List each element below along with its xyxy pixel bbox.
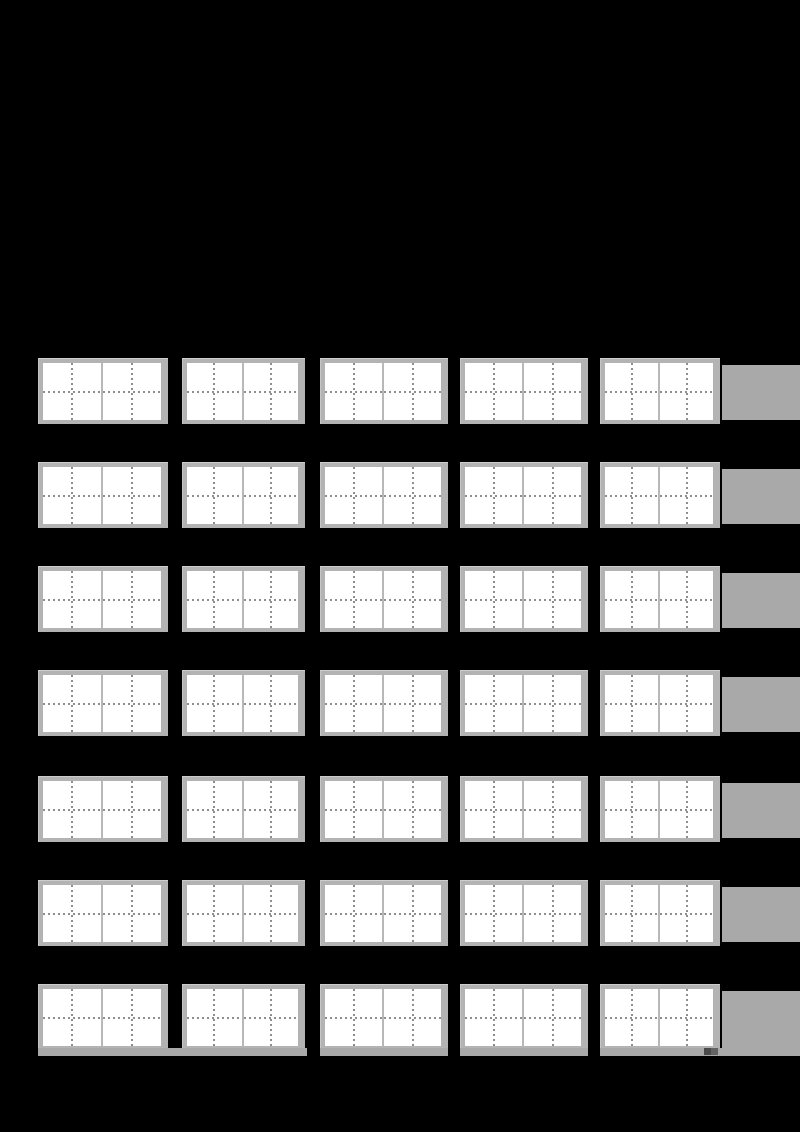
practice-box-r1-c3 [320, 358, 448, 424]
practice-cell [103, 675, 161, 732]
practice-cell [103, 363, 161, 420]
practice-cell [605, 885, 658, 942]
practice-cell [244, 571, 299, 628]
worksheet-page [0, 0, 800, 1132]
practice-box-r5-c3 [320, 776, 448, 842]
practice-cell [244, 675, 299, 732]
cell-pair [465, 989, 581, 1046]
practice-cell [660, 363, 713, 420]
practice-box-r6-c2 [182, 880, 305, 946]
bottom-band-segment [460, 1048, 588, 1056]
practice-cell [384, 989, 441, 1046]
practice-box-r5-c2 [182, 776, 305, 842]
practice-cell [244, 363, 299, 420]
practice-cell [465, 571, 522, 628]
practice-cell [325, 467, 382, 524]
practice-cell [660, 989, 713, 1046]
practice-cell [524, 467, 581, 524]
practice-cell [103, 885, 161, 942]
practice-cell [465, 675, 522, 732]
cell-pair [605, 885, 713, 942]
cell-pair [325, 781, 441, 838]
practice-box-r2-c5 [600, 462, 720, 528]
right-gray-strip [722, 991, 800, 1053]
cell-pair [465, 885, 581, 942]
practice-cell [187, 571, 242, 628]
practice-box-r7-c4 [460, 984, 588, 1050]
practice-cell [465, 363, 522, 420]
cell-pair [43, 885, 161, 942]
practice-cell [187, 675, 242, 732]
practice-box-r4-c5 [600, 670, 720, 736]
right-gray-strip [722, 783, 800, 838]
practice-cell [187, 467, 242, 524]
practice-cell [103, 781, 161, 838]
cell-pair [187, 467, 298, 524]
practice-box-r7-c1 [38, 984, 168, 1050]
cell-pair [187, 571, 298, 628]
practice-box-r2-c1 [38, 462, 168, 528]
practice-cell [384, 885, 441, 942]
practice-cell [605, 989, 658, 1046]
cell-pair [43, 675, 161, 732]
practice-cell [187, 989, 242, 1046]
cell-pair [465, 675, 581, 732]
practice-box-r6-c1 [38, 880, 168, 946]
practice-cell [660, 885, 713, 942]
cell-pair [605, 467, 713, 524]
practice-box-r7-c2 [182, 984, 305, 1050]
practice-cell [103, 989, 161, 1046]
practice-cell [605, 571, 658, 628]
cell-pair [605, 675, 713, 732]
practice-box-r2-c3 [320, 462, 448, 528]
right-gray-strip [722, 573, 800, 628]
practice-box-r1-c1 [38, 358, 168, 424]
practice-box-r1-c4 [460, 358, 588, 424]
cell-pair [187, 989, 298, 1046]
practice-cell [187, 781, 242, 838]
practice-cell [524, 885, 581, 942]
practice-cell [605, 363, 658, 420]
cell-pair [187, 363, 298, 420]
practice-box-r4-c1 [38, 670, 168, 736]
practice-box-r1-c2 [182, 358, 305, 424]
practice-box-r7-c3 [320, 984, 448, 1050]
practice-box-r4-c4 [460, 670, 588, 736]
right-gray-strip [722, 887, 800, 942]
practice-cell [325, 885, 382, 942]
practice-cell [660, 781, 713, 838]
practice-cell [43, 675, 101, 732]
practice-box-r2-c2 [182, 462, 305, 528]
practice-cell [43, 989, 101, 1046]
practice-cell [524, 781, 581, 838]
bottom-band-segment [38, 1048, 307, 1056]
practice-cell [187, 885, 242, 942]
cell-pair [325, 571, 441, 628]
cell-pair [187, 781, 298, 838]
cell-pair [605, 363, 713, 420]
practice-cell [187, 363, 242, 420]
cell-pair [605, 989, 713, 1046]
practice-cell [244, 885, 299, 942]
practice-cell [605, 781, 658, 838]
practice-cell [43, 781, 101, 838]
bottom-band-segment [320, 1048, 448, 1056]
cell-pair [43, 467, 161, 524]
right-gray-strip [722, 469, 800, 524]
cell-pair [325, 989, 441, 1046]
practice-cell [43, 885, 101, 942]
practice-cell [524, 363, 581, 420]
cell-pair [465, 571, 581, 628]
practice-cell [384, 363, 441, 420]
practice-cell [660, 571, 713, 628]
cell-pair [605, 781, 713, 838]
practice-box-r3-c3 [320, 566, 448, 632]
practice-box-r6-c5 [600, 880, 720, 946]
cell-pair [325, 467, 441, 524]
corner-handle [704, 1048, 718, 1055]
practice-cell [103, 467, 161, 524]
practice-cell [384, 571, 441, 628]
practice-cell [43, 571, 101, 628]
practice-cell [465, 885, 522, 942]
practice-box-r1-c5 [600, 358, 720, 424]
cell-pair [465, 363, 581, 420]
practice-cell [465, 467, 522, 524]
cell-pair [325, 675, 441, 732]
practice-cell [524, 571, 581, 628]
practice-box-r3-c4 [460, 566, 588, 632]
practice-cell [325, 675, 382, 732]
practice-cell [524, 675, 581, 732]
practice-cell [325, 781, 382, 838]
cell-pair [325, 885, 441, 942]
practice-cell [605, 675, 658, 732]
practice-box-r5-c5 [600, 776, 720, 842]
bottom-band-segment [600, 1048, 800, 1056]
practice-cell [244, 781, 299, 838]
cell-pair [465, 467, 581, 524]
practice-box-r7-c5 [600, 984, 720, 1050]
practice-cell [384, 467, 441, 524]
practice-box-r4-c3 [320, 670, 448, 736]
right-gray-strip [722, 677, 800, 732]
practice-cell [660, 675, 713, 732]
practice-cell [605, 467, 658, 524]
practice-cell [660, 467, 713, 524]
practice-cell [244, 467, 299, 524]
practice-box-r3-c5 [600, 566, 720, 632]
practice-cell [465, 781, 522, 838]
right-gray-strip [722, 365, 800, 420]
practice-box-r3-c2 [182, 566, 305, 632]
cell-pair [465, 781, 581, 838]
practice-cell [325, 571, 382, 628]
practice-box-r5-c4 [460, 776, 588, 842]
practice-box-r6-c3 [320, 880, 448, 946]
practice-cell [43, 467, 101, 524]
practice-cell [524, 989, 581, 1046]
cell-pair [187, 675, 298, 732]
practice-cell [325, 363, 382, 420]
cell-pair [605, 571, 713, 628]
cell-pair [43, 571, 161, 628]
practice-cell [43, 363, 101, 420]
practice-cell [325, 989, 382, 1046]
practice-cell [244, 989, 299, 1046]
cell-pair [43, 363, 161, 420]
practice-box-r2-c4 [460, 462, 588, 528]
practice-box-r3-c1 [38, 566, 168, 632]
practice-cell [384, 781, 441, 838]
cell-pair [187, 885, 298, 942]
practice-box-r6-c4 [460, 880, 588, 946]
practice-cell [465, 989, 522, 1046]
cell-pair [43, 781, 161, 838]
cell-pair [325, 363, 441, 420]
practice-cell [103, 571, 161, 628]
practice-cell [384, 675, 441, 732]
practice-box-r5-c1 [38, 776, 168, 842]
cell-pair [43, 989, 161, 1046]
practice-box-r4-c2 [182, 670, 305, 736]
